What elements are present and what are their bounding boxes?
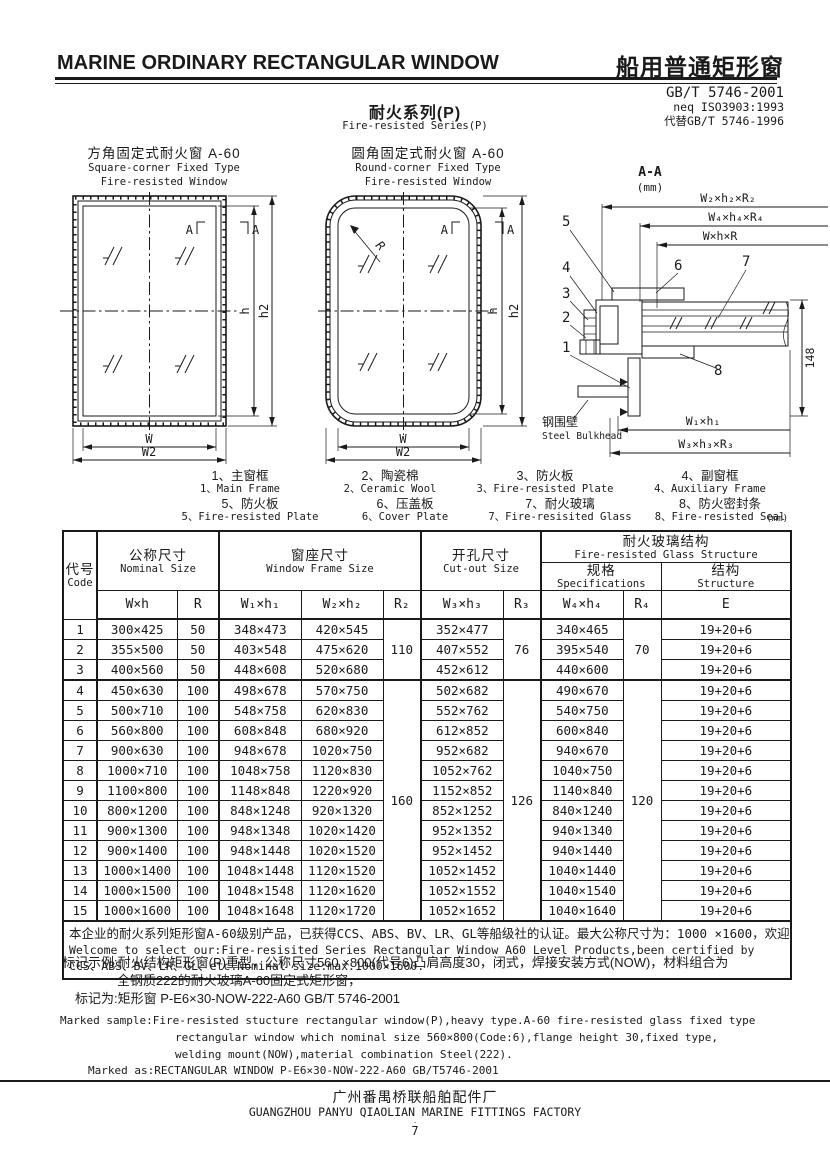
cell: 11 <box>63 821 97 841</box>
col-group-glass: 耐火玻璃结构 Fire-resisted Glass Structure <box>541 531 791 563</box>
cell: 1000×1500 <box>97 881 177 901</box>
footer-rule <box>0 1080 830 1082</box>
cell: 19+20+6 <box>661 761 791 781</box>
table-row: 7 900×630 100 948×678 1020×750 952×682 9… <box>63 741 791 761</box>
cell: 1048×1548 <box>219 881 301 901</box>
sym-r4: R₄ <box>623 591 661 620</box>
cell: 100 <box>177 881 219 901</box>
cell: 50 <box>177 660 219 681</box>
square-title-en2: Fire-resisted Window <box>58 175 270 189</box>
cell: 1052×1552 <box>421 881 503 901</box>
cell: 12 <box>63 841 97 861</box>
cell: 19+20+6 <box>661 701 791 721</box>
cell: 352×477 <box>421 619 503 640</box>
dim-label-w4h4r4: W₄×h₄×R₄ <box>708 210 763 224</box>
round-title-zh: 圆角固定式耐火窗 A-60 <box>320 147 536 161</box>
series-title-en: Fire-resisted Series(P) <box>0 120 830 132</box>
cell: 19+20+6 <box>661 781 791 801</box>
cell: 100 <box>177 861 219 881</box>
cell: 540×750 <box>541 701 623 721</box>
cell: 19+20+6 <box>661 901 791 922</box>
cell: 14 <box>63 881 97 901</box>
cell: 403×548 <box>219 640 301 660</box>
table-row: 14 1000×1500 100 1048×1548 1120×1620 105… <box>63 881 791 901</box>
sym-r: R <box>177 591 219 620</box>
cell: 440×600 <box>541 660 623 681</box>
cell: 1120×1720 <box>301 901 383 922</box>
cell: 940×670 <box>541 741 623 761</box>
page-title-en: MARINE ORDINARY RECTANGULAR WINDOW <box>57 52 499 75</box>
cell: 19+20+6 <box>661 619 791 640</box>
cell: 1040×750 <box>541 761 623 781</box>
cell: 1020×1420 <box>301 821 383 841</box>
cell: 1048×1648 <box>219 901 301 922</box>
legend-6-en: 6、Cover Plate <box>335 511 475 524</box>
cell: 502×682 <box>421 680 503 701</box>
section-bottom-dimensions: W₁×h₁ W₃×h₃×R₃ <box>610 414 790 457</box>
cell: 1052×762 <box>421 761 503 781</box>
square-window-title: 方角固定式耐火窗 A-60 Square-corner Fixed Type F… <box>58 147 270 189</box>
callout-4: 4 <box>562 260 570 276</box>
cell: 900×1300 <box>97 821 177 841</box>
cell: 848×1248 <box>219 801 301 821</box>
sym-w3h3: W₃×h₃ <box>421 591 503 620</box>
legend-item-1: 1、主窗框 1、Main Frame <box>170 470 310 496</box>
cell: 852×1252 <box>421 801 503 821</box>
legend-1-en: 1、Main Frame <box>170 483 310 496</box>
cell: 1040×1440 <box>541 861 623 881</box>
table-row: 12 900×1400 100 948×1448 1020×1520 952×1… <box>63 841 791 861</box>
cell: 19+20+6 <box>661 841 791 861</box>
cell: 612×852 <box>421 721 503 741</box>
round-title-en2: Fire-resisted Window <box>320 175 536 189</box>
cutout-zh: 开孔尺寸 <box>422 548 540 563</box>
section-marker-a-left: A <box>441 223 449 237</box>
square-title-zh: 方角固定式耐火窗 A-60 <box>58 147 270 161</box>
legend-2-en: 2、Ceramic Wool <box>320 483 460 496</box>
round-radius-callout: R <box>350 225 388 262</box>
cell: 1048×1448 <box>219 861 301 881</box>
cell: 355×500 <box>97 640 177 660</box>
cell: 348×473 <box>219 619 301 640</box>
round-window-diagram: R A A h h2 W W2 <box>318 192 542 480</box>
cell: 1040×1640 <box>541 901 623 922</box>
legend-item-3: 3、防火板 3、Fire-resisted Plate <box>455 470 635 496</box>
cell: 1000×710 <box>97 761 177 781</box>
cell-merged-r4: 70 <box>623 619 661 680</box>
square-centerlines <box>60 192 239 435</box>
cell-merged-r3: 126 <box>503 680 541 921</box>
frame-en: Window Frame Size <box>220 563 420 575</box>
cell: 19+20+6 <box>661 861 791 881</box>
cell: 452×612 <box>421 660 503 681</box>
table-row: 13 1000×1400 100 1048×1448 1120×1520 105… <box>63 861 791 881</box>
dim-label-w: W <box>145 432 153 446</box>
cell: 900×630 <box>97 741 177 761</box>
round-title-en1: Round-corner Fixed Type <box>320 161 536 175</box>
cell: 948×678 <box>219 741 301 761</box>
cell: 100 <box>177 761 219 781</box>
dim-label-whr: W×h×R <box>703 229 738 243</box>
cell: 5 <box>63 701 97 721</box>
cell: 490×670 <box>541 680 623 701</box>
cell: 100 <box>177 721 219 741</box>
callout-1: 1 <box>562 340 570 356</box>
cell: 19+20+6 <box>661 801 791 821</box>
legend-2-zh: 2、陶瓷棉 <box>320 470 460 483</box>
section-title: A-A <box>638 165 662 180</box>
cell: 100 <box>177 901 219 922</box>
callout-2: 2 <box>562 310 570 326</box>
cell: 8 <box>63 761 97 781</box>
cell: 940×1340 <box>541 821 623 841</box>
cell: 1052×1452 <box>421 861 503 881</box>
table-unit-label: (mm) <box>766 514 788 524</box>
cell: 100 <box>177 781 219 801</box>
cell: 420×545 <box>301 619 383 640</box>
cell: 520×680 <box>301 660 383 681</box>
cell: 100 <box>177 741 219 761</box>
factory-name-zh: 广州番禺桥联船舶配件厂 <box>0 1087 830 1107</box>
dim-label-h: h <box>238 307 252 314</box>
section-parts <box>578 288 789 416</box>
dim-label-w3h3r3: W₃×h₃×R₃ <box>678 437 733 451</box>
code-en: Code <box>64 577 96 589</box>
legend-1-zh: 1、主窗框 <box>170 470 310 483</box>
table-header-symbols: W×h R W₁×h₁ W₂×h₂ R₂ W₃×h₃ R₃ W₄×h₄ R₄ E <box>63 591 791 620</box>
cell: 10 <box>63 801 97 821</box>
marking-zh-3: 标记为:矩形窗 P-E6×30-NOW-222-A60 GB/T 5746-20… <box>75 988 400 1007</box>
cell: 1000×1600 <box>97 901 177 922</box>
nominal-zh: 公称尺寸 <box>98 548 218 563</box>
cell: 407×552 <box>421 640 503 660</box>
col-group-spec: 规格 Specifications <box>541 563 661 591</box>
marking-en-3: welding mount(NOW),material combination … <box>175 1048 513 1061</box>
cell: 560×800 <box>97 721 177 741</box>
dim-label-w2h2r2: W₂×h₂×R₂ <box>700 191 755 205</box>
cell: 800×1200 <box>97 801 177 821</box>
cell: 475×620 <box>301 640 383 660</box>
cell: 1020×1520 <box>301 841 383 861</box>
header-rule-thin <box>55 83 777 84</box>
glass-en: Fire-resisted Glass Structure <box>542 549 790 561</box>
page-number: 7 <box>0 1124 830 1138</box>
callout-3: 3 <box>562 286 570 302</box>
cell: 940×1440 <box>541 841 623 861</box>
table-row: 5 500×710 100 548×758 620×830 552×762 54… <box>63 701 791 721</box>
legend-5-en: 5、Fire-resisted Plate <box>160 511 340 524</box>
cell-merged-r4: 120 <box>623 680 661 921</box>
cell: 7 <box>63 741 97 761</box>
col-group-struct: 结构 Structure <box>661 563 791 591</box>
section-marker-a-right: A <box>507 223 515 237</box>
cell: 1100×800 <box>97 781 177 801</box>
marking-en-1: Marked sample:Fire-resisted stucture rec… <box>60 1014 755 1027</box>
cell: 2 <box>63 640 97 660</box>
sym-w4h4: W₄×h₄ <box>541 591 623 620</box>
legend-3-en: 3、Fire-resisted Plate <box>455 483 635 496</box>
cell: 1148×848 <box>219 781 301 801</box>
dim-label-148: 148 <box>803 348 817 369</box>
col-code: 代号 Code <box>63 531 97 619</box>
legend-5-zh: 5、防火板 <box>160 498 340 511</box>
legend-4-en: 4、Auxiliary Frame <box>620 483 800 496</box>
cell: 395×540 <box>541 640 623 660</box>
dim-label-h: h <box>486 307 500 314</box>
cell: 840×1240 <box>541 801 623 821</box>
cell: 498×678 <box>219 680 301 701</box>
cell: 948×1348 <box>219 821 301 841</box>
cell: 19+20+6 <box>661 741 791 761</box>
round-window-title: 圆角固定式耐火窗 A-60 Round-corner Fixed Type Fi… <box>320 147 536 189</box>
cell: 1040×1540 <box>541 881 623 901</box>
table-row: 15 1000×1600 100 1048×1648 1120×1720 105… <box>63 901 791 922</box>
marking-zh-2: 全钢质222的耐火玻璃A-60固定式矩形窗， <box>117 970 361 989</box>
dim-label-w2: W2 <box>396 445 410 459</box>
cell: 450×630 <box>97 680 177 701</box>
cell: 100 <box>177 801 219 821</box>
table-row: 6 560×800 100 608×848 680×920 612×852 60… <box>63 721 791 741</box>
table-row: 2 355×500 50 403×548 475×620 407×552 395… <box>63 640 791 660</box>
cell: 1120×1620 <box>301 881 383 901</box>
dim-label-r: R <box>373 238 388 253</box>
table-row: 10 800×1200 100 848×1248 920×1320 852×12… <box>63 801 791 821</box>
legend-3-zh: 3、防火板 <box>455 470 635 483</box>
note-zh: 本企业的耐火系列矩形窗A-60级别产品，已获得CCS、ABS、BV、LR、GL等… <box>69 926 785 942</box>
legend-6-zh: 6、压盖板 <box>335 498 475 511</box>
cell-merged-r2: 160 <box>383 680 421 921</box>
cell: 19+20+6 <box>661 721 791 741</box>
table-row: 8 1000×710 100 1048×758 1120×830 1052×76… <box>63 761 791 781</box>
sym-wh: W×h <box>97 591 177 620</box>
dim-label-h2: h2 <box>257 304 271 318</box>
cell: 900×1400 <box>97 841 177 861</box>
section-right-dimension: 148 <box>790 300 817 457</box>
cell: 948×1448 <box>219 841 301 861</box>
cell: 620×830 <box>301 701 383 721</box>
cell: 1140×840 <box>541 781 623 801</box>
section-marker-a-right: A <box>252 223 260 237</box>
cell: 1000×1400 <box>97 861 177 881</box>
table-header-groups: 代号 Code 公称尺寸 Nominal Size 窗座尺寸 Window Fr… <box>63 531 791 563</box>
dim-label-w1h1: W₁×h₁ <box>686 414 721 428</box>
cell: 1220×920 <box>301 781 383 801</box>
cell: 3 <box>63 660 97 681</box>
cell: 680×920 <box>301 721 383 741</box>
cell: 1048×758 <box>219 761 301 781</box>
sym-r3: R₃ <box>503 591 541 620</box>
col-group-cutout: 开孔尺寸 Cut-out Size <box>421 531 541 591</box>
section-aa-diagram: A-A (mm) W₂×h₂×R₂ W₄×h₄×R₄ W×h×R <box>540 160 830 475</box>
section-top-dimensions: W₂×h₂×R₂ W₄×h₄×R₄ W×h×R <box>602 191 828 308</box>
sym-e: E <box>661 591 791 620</box>
cutout-en: Cut-out Size <box>422 563 540 575</box>
code-zh: 代号 <box>64 562 96 577</box>
cell: 6 <box>63 721 97 741</box>
cell: 19+20+6 <box>661 660 791 681</box>
cell: 1152×852 <box>421 781 503 801</box>
cell: 100 <box>177 680 219 701</box>
legend-item-5: 5、防火板 5、Fire-resisted Plate <box>160 498 340 524</box>
cell: 952×1452 <box>421 841 503 861</box>
cell: 608×848 <box>219 721 301 741</box>
round-dimensions: h h2 W W2 <box>326 196 527 464</box>
cell: 1020×750 <box>301 741 383 761</box>
cell: 19+20+6 <box>661 680 791 701</box>
col-group-frame: 窗座尺寸 Window Frame Size <box>219 531 421 591</box>
cell: 19+20+6 <box>661 881 791 901</box>
cell: 19+20+6 <box>661 640 791 660</box>
cell: 552×762 <box>421 701 503 721</box>
cell: 400×560 <box>97 660 177 681</box>
cell: 13 <box>63 861 97 881</box>
square-title-en1: Square-corner Fixed Type <box>58 161 270 175</box>
cell: 1 <box>63 619 97 640</box>
bulkhead-label-en: Steel Bulkhead <box>542 431 622 442</box>
struct-en: Structure <box>662 578 791 590</box>
round-section-markers: A A <box>441 222 515 237</box>
marking-zh-1: 标记示例:耐火结构矩形窗(P)重型，公称尺寸560 ×800(代号6)凸肩高度3… <box>62 952 728 971</box>
cell-merged-r2: 110 <box>383 619 421 680</box>
cell: 300×425 <box>97 619 177 640</box>
cell: 1120×830 <box>301 761 383 781</box>
sym-w2h2: W₂×h₂ <box>301 591 383 620</box>
cell: 1052×1652 <box>421 901 503 922</box>
cell: 100 <box>177 841 219 861</box>
table-row: 1 300×425 50 348×473 420×545 110 352×477… <box>63 619 791 640</box>
square-glass-marks <box>103 247 194 373</box>
square-window-diagram: A A h h2 W W2 <box>58 192 310 480</box>
frame-zh: 窗座尺寸 <box>220 548 420 563</box>
spec-en: Specifications <box>542 578 661 590</box>
standard-number: GB/T 5746-2001 <box>664 86 784 100</box>
cell: 100 <box>177 821 219 841</box>
struct-zh: 结构 <box>662 563 791 578</box>
dim-label-w: W <box>399 432 407 446</box>
legend-item-4: 4、副窗框 4、Auxiliary Frame <box>620 470 800 496</box>
legend-4-zh: 4、副窗框 <box>620 470 800 483</box>
dim-label-h2: h2 <box>507 304 521 318</box>
spec-zh: 规格 <box>542 563 661 578</box>
sym-w1h1: W₁×h₁ <box>219 591 301 620</box>
callout-7: 7 <box>742 254 750 270</box>
cell: 548×758 <box>219 701 301 721</box>
callout-8: 8 <box>714 363 722 379</box>
table-row: 9 1100×800 100 1148×848 1220×920 1152×85… <box>63 781 791 801</box>
cell: 500×710 <box>97 701 177 721</box>
table-row: 3 400×560 50 448×608 520×680 452×612 440… <box>63 660 791 681</box>
cell: 4 <box>63 680 97 701</box>
section-unit: (mm) <box>637 181 664 194</box>
cell: 50 <box>177 640 219 660</box>
marking-en-4: Marked as:RECTANGULAR WINDOW P-E6×30-NOW… <box>88 1064 499 1077</box>
legend-item-6: 6、压盖板 6、Cover Plate <box>335 498 475 524</box>
legend-item-2: 2、陶瓷棉 2、Ceramic Wool <box>320 470 460 496</box>
glass-zh: 耐火玻璃结构 <box>542 534 790 549</box>
marking-en-2: rectangular window which nominal size 56… <box>175 1031 718 1044</box>
cell: 448×608 <box>219 660 301 681</box>
legend-8-zh: 8、防火密封条 <box>625 498 815 511</box>
cell-merged-r3: 76 <box>503 619 541 680</box>
dim-label-w2: W2 <box>142 445 156 459</box>
table-row: 4 450×630 100 498×678 570×750 160 502×68… <box>63 680 791 701</box>
specification-table: 代号 Code 公称尺寸 Nominal Size 窗座尺寸 Window Fr… <box>62 530 792 980</box>
section-marker-a-left: A <box>186 223 194 237</box>
callout-6: 6 <box>674 258 682 274</box>
round-centerlines <box>318 192 494 435</box>
cell: 100 <box>177 701 219 721</box>
cell: 340×465 <box>541 619 623 640</box>
round-glass-marks <box>358 255 447 371</box>
sym-r2: R₂ <box>383 591 421 620</box>
header-rule-thick <box>55 77 777 80</box>
col-group-nominal: 公称尺寸 Nominal Size <box>97 531 219 591</box>
cell: 50 <box>177 619 219 640</box>
cell: 15 <box>63 901 97 922</box>
cell: 952×1352 <box>421 821 503 841</box>
cell: 600×840 <box>541 721 623 741</box>
cell: 19+20+6 <box>661 821 791 841</box>
cell: 920×1320 <box>301 801 383 821</box>
cell: 570×750 <box>301 680 383 701</box>
table-row: 11 900×1300 100 948×1348 1020×1420 952×1… <box>63 821 791 841</box>
callout-5: 5 <box>562 214 570 230</box>
bulkhead-label-zh: 钢围壁 <box>542 414 578 429</box>
cell: 1120×1520 <box>301 861 383 881</box>
nominal-en: Nominal Size <box>98 563 218 575</box>
document-page: MARINE ORDINARY RECTANGULAR WINDOW 船用普通矩… <box>0 0 830 1175</box>
cell: 9 <box>63 781 97 801</box>
cell: 952×682 <box>421 741 503 761</box>
